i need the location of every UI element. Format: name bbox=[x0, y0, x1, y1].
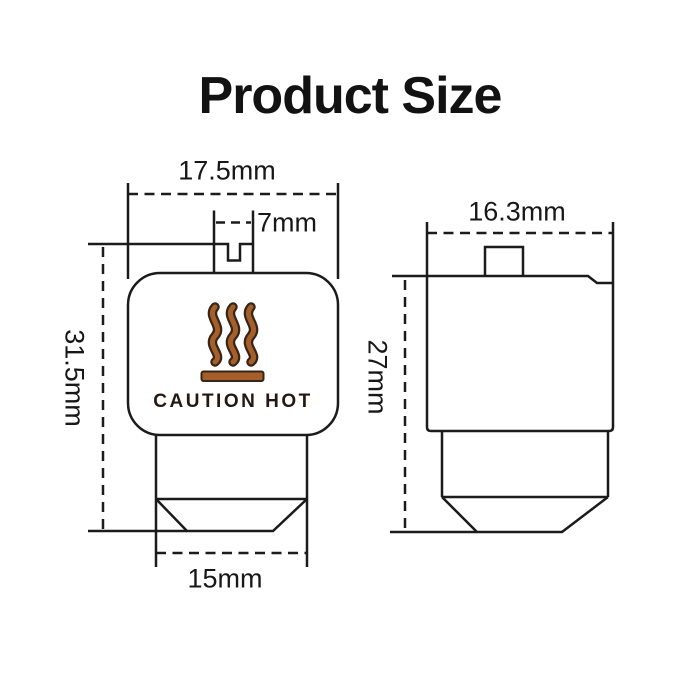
front-nozzle-width-label: 15mm bbox=[187, 564, 262, 595]
front-nozzle-tip bbox=[156, 499, 307, 531]
front-neck-sides bbox=[156, 435, 307, 499]
side-view bbox=[390, 222, 613, 532]
side-top-edge-with-height-extension bbox=[392, 276, 613, 283]
side-neck bbox=[442, 431, 608, 497]
front-tab-sides bbox=[214, 211, 253, 274]
front-width-label: 17.5mm bbox=[178, 156, 276, 187]
side-main-body bbox=[427, 276, 613, 431]
side-width-label: 16.3mm bbox=[468, 197, 566, 228]
side-height-label: 27mm bbox=[362, 339, 393, 414]
front-view bbox=[88, 183, 338, 567]
side-dimension-lines bbox=[390, 222, 613, 532]
front-height-label: 31.5mm bbox=[59, 329, 90, 427]
front-tab-top-with-slot bbox=[214, 244, 253, 261]
side-body-outline bbox=[392, 247, 613, 532]
caution-hot-label: CAUTION HOT bbox=[153, 391, 312, 413]
heat-bar bbox=[202, 372, 264, 382]
dimension-drawing bbox=[0, 0, 700, 700]
side-nozzle-tip bbox=[442, 497, 608, 532]
heat-waves-icon bbox=[202, 307, 264, 381]
product-size-figure: Product Size bbox=[0, 0, 700, 700]
front-slot-width-label: 7mm bbox=[257, 208, 317, 239]
side-tab bbox=[485, 247, 523, 276]
